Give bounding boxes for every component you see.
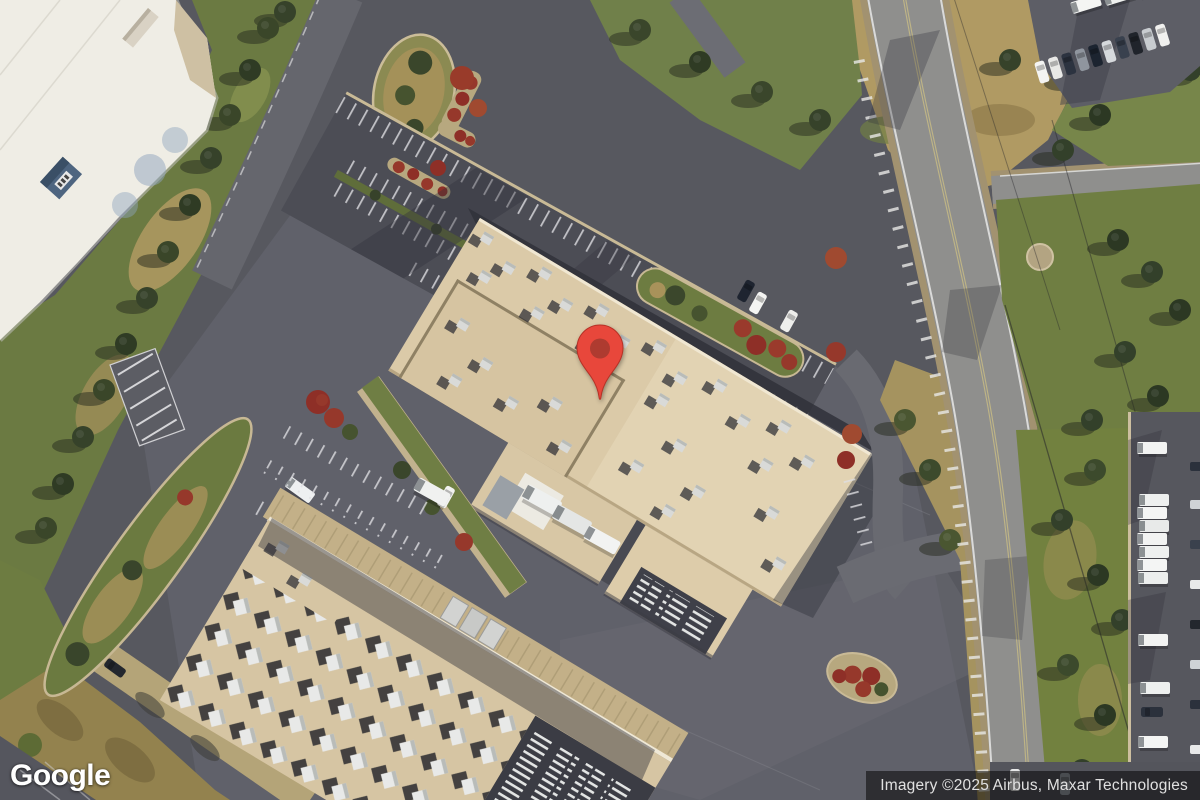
google-logo[interactable]: Google	[10, 759, 110, 793]
google-logo-text: Google	[10, 759, 110, 792]
imagery-attribution: Imagery ©2025 Airbus, Maxar Technologies	[866, 771, 1200, 800]
pin-body	[577, 325, 623, 399]
pin-dot	[590, 339, 610, 359]
location-pin-icon[interactable]	[575, 324, 625, 402]
attribution-text: Imagery ©2025 Airbus, Maxar Technologies	[880, 777, 1188, 795]
satellite-map[interactable]: Google Imagery ©2025 Airbus, Maxar Techn…	[0, 0, 1200, 800]
